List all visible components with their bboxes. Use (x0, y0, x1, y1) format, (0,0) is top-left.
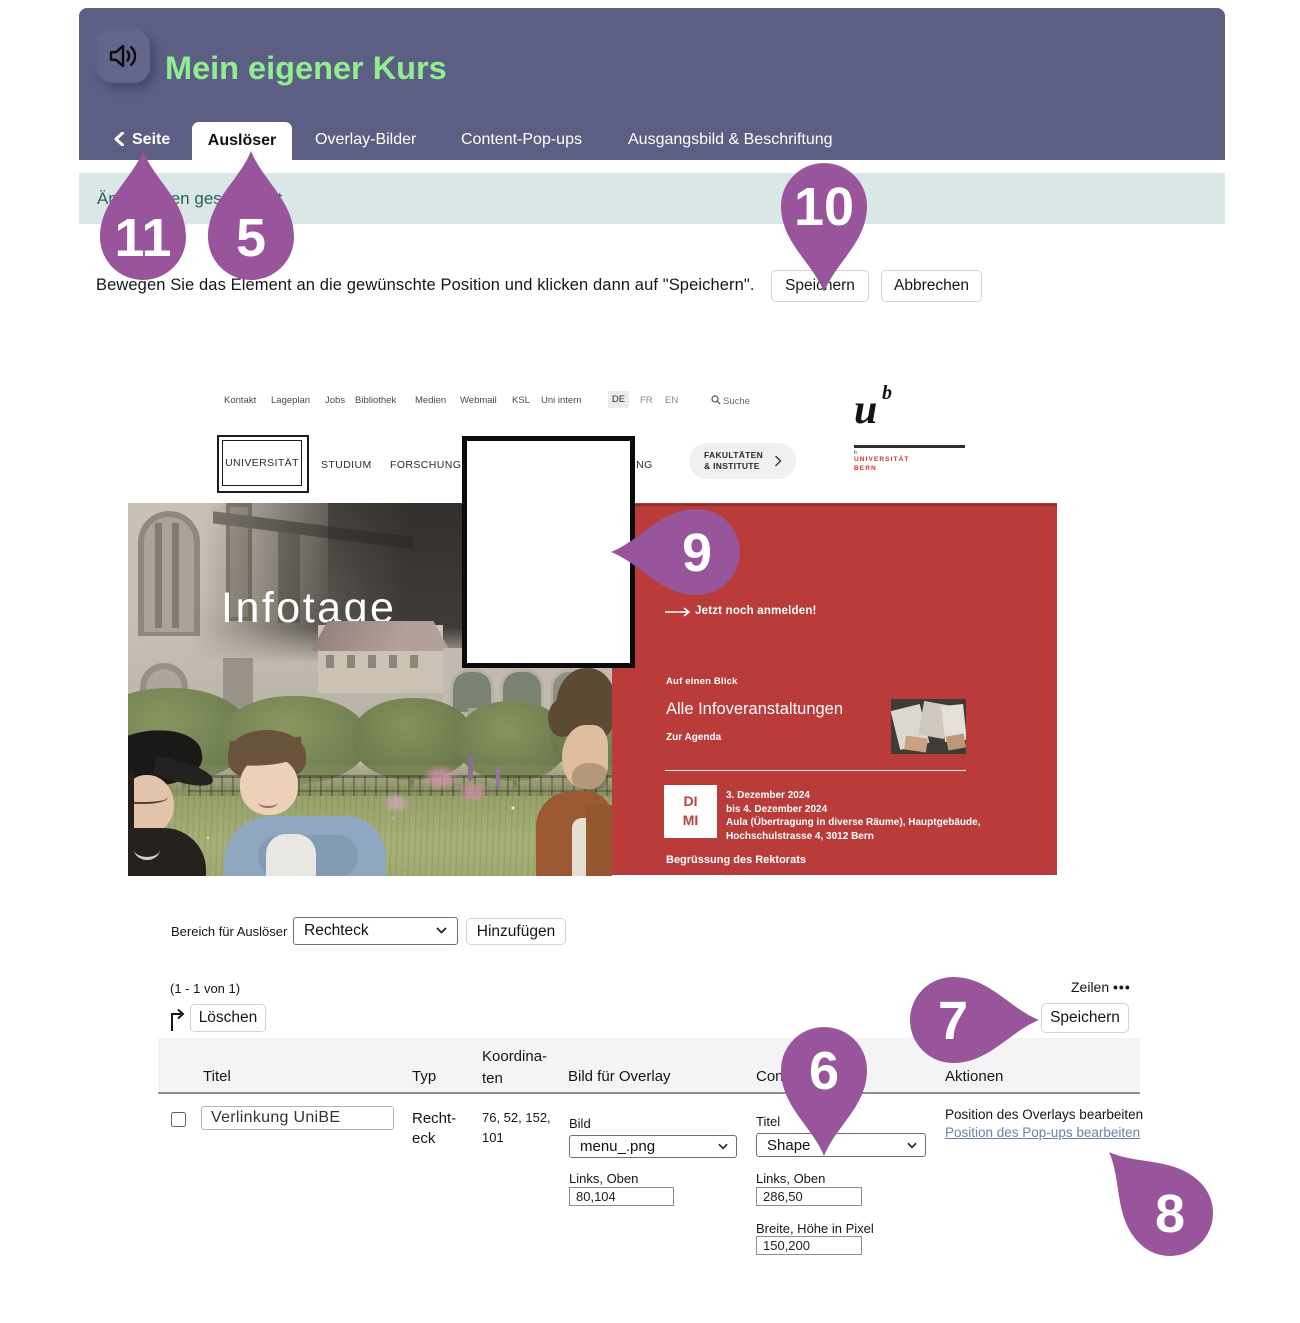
svg-text:9: 9 (682, 523, 712, 583)
svg-text:6: 6 (809, 1041, 839, 1101)
svg-text:5: 5 (235, 208, 265, 268)
svg-text:8: 8 (1155, 1184, 1185, 1244)
svg-text:7: 7 (938, 991, 968, 1051)
svg-text:10: 10 (793, 177, 853, 237)
